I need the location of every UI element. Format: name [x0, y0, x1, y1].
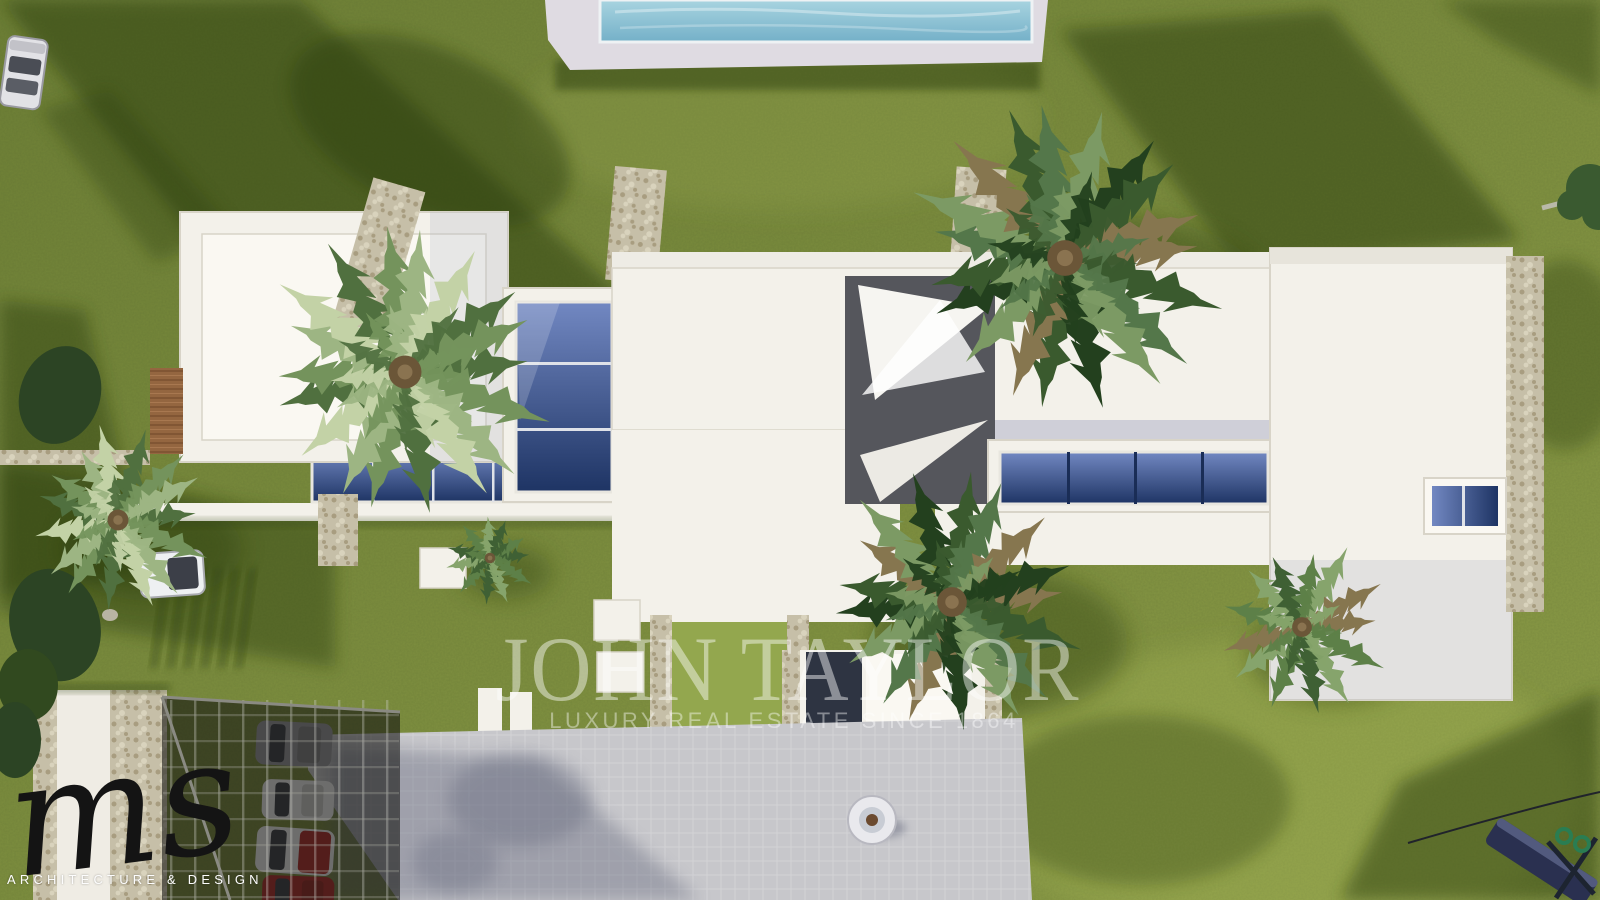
- swimming-pool: [545, 0, 1048, 70]
- carport: [162, 697, 400, 900]
- aerial-villa-render: JOHN TAYLOR LUXURY REAL ESTATE SINCE 186…: [0, 0, 1600, 900]
- scene-svg: [0, 0, 1600, 900]
- driveway: [308, 718, 1032, 900]
- utility-cart-top: [0, 35, 49, 110]
